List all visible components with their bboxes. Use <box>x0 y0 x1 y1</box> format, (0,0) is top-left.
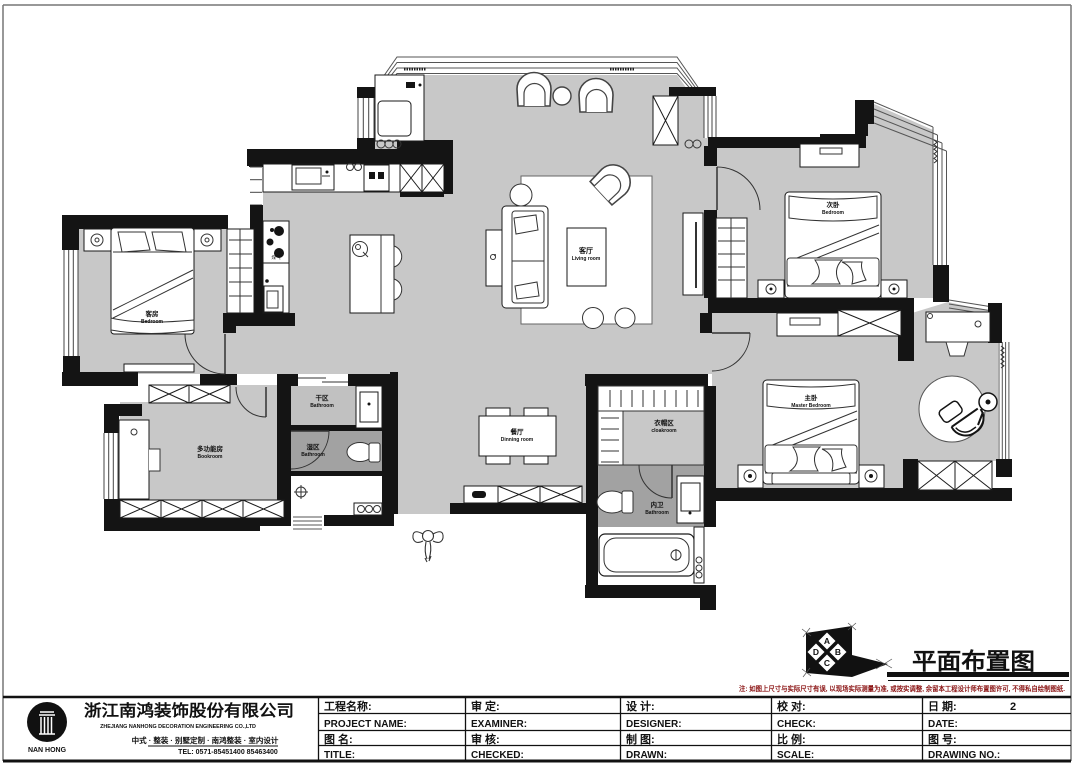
svg-text:DRAWING NO.:: DRAWING NO.: <box>928 750 1000 761</box>
svg-text:TITLE:: TITLE: <box>324 750 355 761</box>
svg-text:Bedroom: Bedroom <box>822 210 845 216</box>
svg-text:注: 如图上尺寸与实际尺寸有误, 以现场实际测量为准, 或按: 注: 如图上尺寸与实际尺寸有误, 以现场实际测量为准, 或按实调整, 余留本工程… <box>739 684 1065 693</box>
svg-text:浙江南鸿装饰股份有限公司: 浙江南鸿装饰股份有限公司 <box>84 701 294 720</box>
svg-text:客房: 客房 <box>145 309 160 318</box>
svg-text:cloakroom: cloakroom <box>651 428 677 434</box>
svg-text:次卧: 次卧 <box>827 200 841 209</box>
svg-text:干区: 干区 <box>316 394 330 402</box>
svg-text:Master Bedroom: Master Bedroom <box>791 403 831 409</box>
svg-text:Bathroom: Bathroom <box>645 510 669 516</box>
svg-text:SCALE:: SCALE: <box>777 750 814 761</box>
svg-text:校 对:: 校 对: <box>777 699 806 713</box>
svg-text:衣帽区: 衣帽区 <box>654 418 674 427</box>
svg-text:DATE:: DATE: <box>928 719 958 730</box>
svg-text:DESIGNER:: DESIGNER: <box>626 719 682 730</box>
svg-text:A: A <box>824 636 830 646</box>
svg-text:CHECKED:: CHECKED: <box>471 750 524 761</box>
svg-text:2: 2 <box>1010 701 1016 713</box>
svg-text:TEL: 0571-85451400 85463400: TEL: 0571-85451400 85463400 <box>178 749 278 756</box>
svg-text:日 期:: 日 期: <box>928 699 957 713</box>
svg-text:CHECK:: CHECK: <box>777 719 816 730</box>
svg-text:DRAWN:: DRAWN: <box>626 750 667 761</box>
svg-text:审 核:: 审 核: <box>471 732 500 746</box>
svg-text:NAN HONG: NAN HONG <box>28 747 67 754</box>
svg-text:平面布置图: 平面布置图 <box>912 648 1035 674</box>
svg-text:比 例:: 比 例: <box>777 732 806 746</box>
svg-text:Bathroom: Bathroom <box>310 403 334 409</box>
svg-text:PROJECT NAME:: PROJECT NAME: <box>324 719 407 730</box>
svg-text:Bedroom: Bedroom <box>141 319 164 325</box>
svg-text:内卫: 内卫 <box>651 500 665 509</box>
svg-text:Bathroom: Bathroom <box>301 452 325 458</box>
svg-text:煤气: 煤气 <box>272 254 281 261</box>
svg-text:设 计:: 设 计: <box>626 699 655 713</box>
svg-text:EXAMINER:: EXAMINER: <box>471 719 527 730</box>
svg-text:主卧: 主卧 <box>805 393 819 402</box>
svg-text:Living room: Living room <box>572 256 601 262</box>
svg-text:Bookroom: Bookroom <box>198 454 224 460</box>
svg-text:餐厅: 餐厅 <box>510 427 525 436</box>
svg-text:B: B <box>835 647 841 657</box>
svg-text:C: C <box>824 658 830 668</box>
svg-text:ZHEJIANG NANHONG DECORATION: ZHEJIANG NANHONG DECORATION ENGINEERING … <box>100 724 256 730</box>
svg-text:制 图:: 制 图: <box>626 732 655 746</box>
svg-text:客厅: 客厅 <box>578 246 593 255</box>
svg-text:D: D <box>813 647 819 657</box>
svg-text:Dinning room: Dinning room <box>501 437 534 443</box>
svg-text:图 号:: 图 号: <box>928 733 957 746</box>
svg-text:中式 · 整装 · 别墅定制 · 南鸿整装 · 室内设计: 中式 · 整装 · 别墅定制 · 南鸿整装 · 室内设计 <box>132 735 279 745</box>
svg-text:图 名:: 图 名: <box>324 732 353 746</box>
svg-text:多功能房: 多功能房 <box>197 444 224 453</box>
svg-text:审 定:: 审 定: <box>471 699 500 713</box>
svg-text:湿区: 湿区 <box>307 442 321 451</box>
svg-text:工程名称:: 工程名称: <box>324 699 372 713</box>
